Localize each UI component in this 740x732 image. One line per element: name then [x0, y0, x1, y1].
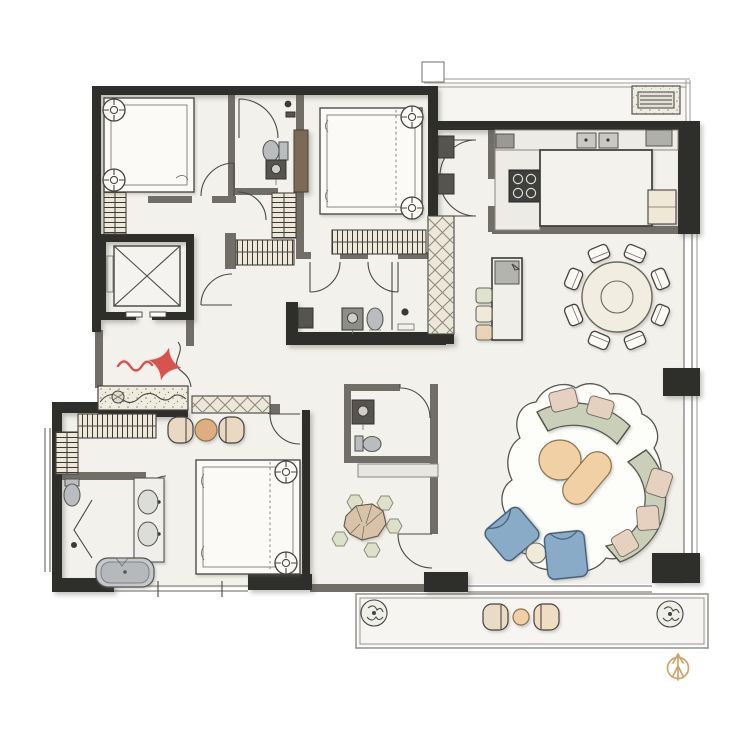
- room-bedroom-3: [103, 98, 194, 192]
- shoe-bench: [192, 396, 270, 413]
- elevator-door: [150, 312, 166, 317]
- round-side-table: [401, 197, 423, 219]
- stepping-stone: [332, 532, 348, 546]
- wood-sliding-panel: [294, 130, 308, 192]
- hall-cabinet: [438, 174, 454, 194]
- ac-unit-icon: [632, 86, 680, 114]
- balcony-tea-table: [513, 609, 529, 625]
- side-table: [526, 543, 546, 563]
- utility-shaft: [428, 216, 454, 334]
- closet-rail: [78, 414, 156, 438]
- armchair-blue: [544, 530, 589, 580]
- plant-icon: [657, 601, 683, 627]
- closet-rail: [272, 193, 296, 238]
- microwave-icon: [496, 134, 514, 148]
- corner-appliance: [646, 130, 672, 146]
- lounge-chair: [168, 417, 193, 443]
- round-side-table: [103, 169, 125, 191]
- floor-plan-page: [0, 0, 740, 732]
- tea-table: [195, 419, 217, 441]
- washer-icon: [298, 308, 313, 328]
- elevator: [107, 246, 180, 317]
- stool: [476, 325, 492, 340]
- entry-planter: [98, 386, 188, 410]
- cooktop-icon: [509, 170, 540, 202]
- round-nightstand: [275, 552, 297, 574]
- closet-rail: [56, 432, 78, 474]
- toilet-icon: [355, 436, 381, 452]
- room-bedroom-2: [320, 106, 423, 219]
- closet-rail: [104, 190, 126, 234]
- north-compass-icon: [668, 654, 689, 680]
- plant-icon: [361, 600, 387, 626]
- shower-drain: [71, 542, 77, 548]
- shower-head-icon: [285, 101, 292, 108]
- kitchen-island: [540, 150, 652, 226]
- closet-shelf: [236, 240, 294, 265]
- stepping-stone: [377, 496, 393, 510]
- toilet-icon: [64, 479, 80, 506]
- stool: [476, 306, 492, 322]
- balcony-top: [422, 62, 690, 121]
- elevator-door: [126, 312, 142, 317]
- dining-table: [582, 262, 652, 332]
- stepping-stone: [364, 543, 380, 557]
- balcony-bottom: [356, 594, 708, 648]
- stepping-stone: [386, 519, 402, 533]
- shower-head-icon: [401, 308, 408, 315]
- closet-rail: [332, 230, 426, 254]
- refrigerator-icon: [648, 190, 676, 224]
- lounge-chair: [219, 417, 244, 443]
- hall-cabinet: [438, 136, 454, 158]
- round-side-table: [401, 106, 423, 128]
- stool: [476, 288, 492, 303]
- toilet-icon: [263, 141, 288, 162]
- bench-shelf: [358, 464, 438, 477]
- toilet-icon: [367, 308, 383, 330]
- double-vanity: [134, 478, 164, 562]
- round-nightstand: [275, 461, 297, 483]
- floor-plan-canvas: [0, 0, 740, 732]
- washbasin-icon: [342, 308, 363, 334]
- round-side-table: [103, 99, 125, 121]
